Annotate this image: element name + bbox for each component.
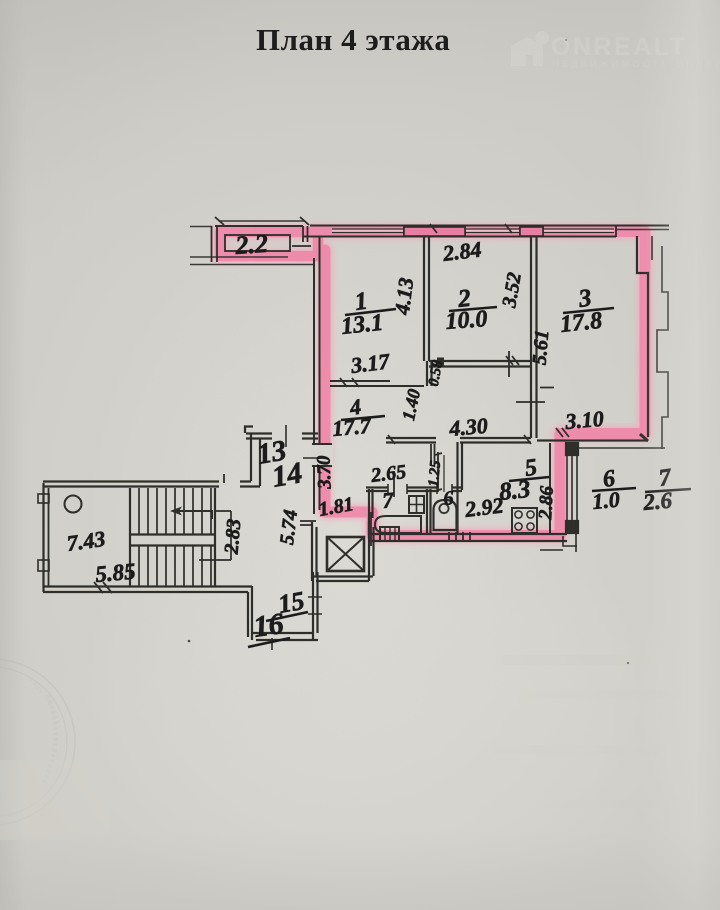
svg-text:6: 6 — [443, 487, 455, 510]
svg-text:1.0: 1.0 — [591, 487, 621, 514]
svg-text:7.43: 7.43 — [65, 526, 107, 556]
svg-text:5.74: 5.74 — [276, 509, 302, 546]
svg-text:4.13: 4.13 — [390, 276, 418, 316]
svg-text:2.65: 2.65 — [369, 461, 407, 487]
svg-text:2.83: 2.83 — [220, 518, 245, 556]
svg-text:2.84: 2.84 — [441, 236, 483, 266]
svg-text:2.2: 2.2 — [233, 229, 268, 260]
svg-text:14: 14 — [269, 456, 304, 494]
svg-text:2.92: 2.92 — [463, 492, 505, 522]
svg-text:4.30: 4.30 — [447, 413, 489, 441]
svg-text:8.3: 8.3 — [498, 476, 532, 506]
svg-text:17.7: 17.7 — [331, 413, 373, 441]
svg-text:5.61: 5.61 — [529, 329, 554, 366]
svg-text:3.17: 3.17 — [349, 348, 392, 378]
svg-text:5.85: 5.85 — [94, 559, 136, 587]
svg-text:1.25: 1.25 — [426, 459, 444, 487]
svg-text:16: 16 — [251, 607, 285, 644]
svg-text:2.86: 2.86 — [535, 485, 558, 521]
svg-text:3.10: 3.10 — [563, 406, 605, 434]
svg-text:3.70: 3.70 — [313, 455, 335, 490]
svg-text:План 4 этажа: План 4 этажа — [256, 22, 450, 57]
